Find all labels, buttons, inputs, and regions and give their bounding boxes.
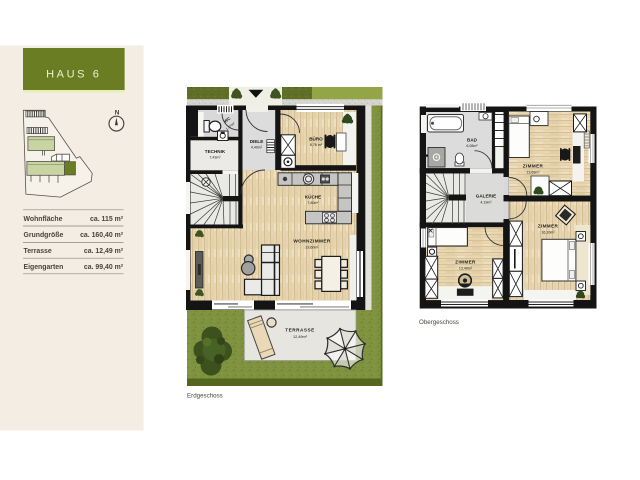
svg-text:ca. 160,40 m²: ca. 160,40 m² [80,232,124,239]
svg-text:12,49m²: 12,49m² [293,335,308,339]
svg-text:7,43m²: 7,43m² [209,156,221,160]
svg-text:BAD: BAD [467,138,478,143]
svg-text:Erdgeschoss: Erdgeschoss [187,393,223,400]
svg-text:Obergeschoss: Obergeschoss [419,319,459,326]
svg-text:BÜRO: BÜRO [309,136,323,142]
svg-text:DIELE: DIELE [250,139,264,144]
svg-text:ZIMMER: ZIMMER [538,224,559,229]
svg-text:6,08m²: 6,08m² [466,144,478,148]
svg-text:TECHNIK: TECHNIK [205,149,226,154]
svg-text:Eigengarten: Eigengarten [24,264,64,271]
svg-text:Grundgröße: Grundgröße [24,232,64,239]
svg-text:Terrasse: Terrasse [24,248,52,255]
svg-text:N: N [115,110,120,117]
svg-text:ca. 115 m²: ca. 115 m² [90,216,124,223]
svg-text:13,40m²: 13,40m² [459,267,473,271]
svg-text:16,10m²: 16,10m² [541,231,555,235]
svg-text:WOHNZIMMER: WOHNZIMMER [293,239,331,244]
svg-text:TERRASSE: TERRASSE [285,328,315,333]
svg-text:8,76 m²: 8,76 m² [310,143,323,147]
svg-text:GALERIE: GALERIE [476,194,496,199]
svg-text:ZIMMER: ZIMMER [523,164,544,169]
svg-text:4,19m²: 4,19m² [480,201,492,205]
svg-text:Wohnfläche: Wohnfläche [24,216,63,223]
svg-text:7,80m²: 7,80m² [307,201,319,205]
svg-text:19,60m²: 19,60m² [305,246,319,250]
svg-text:KÜCHE: KÜCHE [305,194,321,200]
svg-text:ca. 12,49 m²: ca. 12,49 m² [84,248,124,255]
svg-text:ZIMMER: ZIMMER [455,260,476,265]
svg-text:13,69m²: 13,69m² [526,171,540,175]
svg-text:HAUS 6: HAUS 6 [46,69,101,81]
svg-text:4,49m²: 4,49m² [251,146,263,150]
svg-text:ca. 99,40 m²: ca. 99,40 m² [84,264,124,271]
